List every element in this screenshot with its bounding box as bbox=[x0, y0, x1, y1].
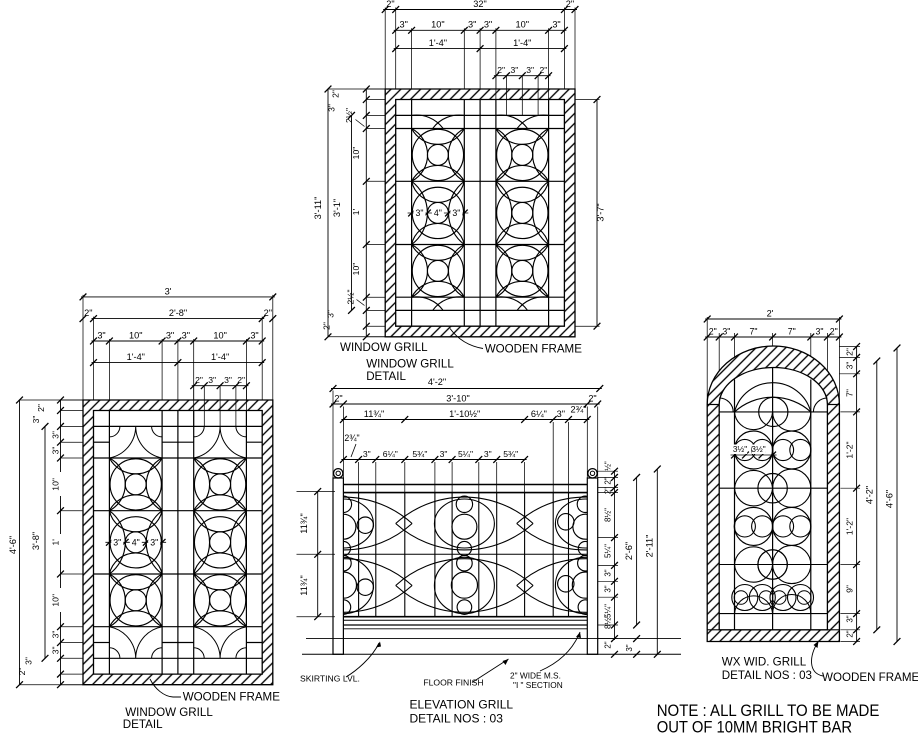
svg-text:4'-6": 4'-6" bbox=[8, 536, 18, 554]
svg-text:2": 2" bbox=[709, 326, 717, 336]
svg-text:3'-10": 3'-10" bbox=[446, 393, 469, 403]
svg-text:1'-2": 1'-2" bbox=[844, 518, 854, 535]
svg-text:WINDOW GRILL: WINDOW GRILL bbox=[366, 357, 454, 370]
svg-text:3": 3" bbox=[51, 631, 61, 639]
svg-text:10": 10" bbox=[516, 20, 529, 30]
svg-text:WOODEN FRAME: WOODEN FRAME bbox=[822, 671, 918, 684]
svg-text:7": 7" bbox=[749, 326, 757, 336]
svg-text:3": 3" bbox=[484, 20, 492, 30]
svg-text:1'-10½": 1'-10½" bbox=[449, 409, 480, 419]
svg-text:WOODEN FRAME: WOODEN FRAME bbox=[183, 691, 281, 704]
svg-text:6¼": 6¼" bbox=[383, 449, 398, 459]
svg-text:2": 2" bbox=[588, 393, 596, 403]
svg-text:"I " SECTION: "I " SECTION bbox=[513, 680, 563, 690]
svg-text:3'-8": 3'-8" bbox=[31, 532, 41, 550]
svg-text:1'-4": 1'-4" bbox=[127, 352, 145, 362]
svg-text:3": 3" bbox=[815, 326, 823, 336]
svg-text:2": 2" bbox=[845, 630, 854, 637]
svg-text:2'-11": 2'-11" bbox=[645, 535, 655, 558]
svg-text:4'-2": 4'-2" bbox=[864, 486, 874, 504]
svg-text:3": 3" bbox=[526, 65, 534, 75]
svg-text:WINDOW GRILL: WINDOW GRILL bbox=[125, 706, 213, 719]
svg-text:3": 3" bbox=[415, 208, 423, 218]
svg-text:11¾": 11¾" bbox=[299, 513, 309, 533]
svg-text:4": 4" bbox=[132, 537, 140, 547]
svg-text:DETAIL NOS : 03: DETAIL NOS : 03 bbox=[722, 669, 812, 682]
svg-text:2": 2" bbox=[604, 487, 613, 494]
svg-text:10": 10" bbox=[431, 20, 444, 30]
svg-text:SKIRTING LVL.: SKIRTING LVL. bbox=[300, 674, 360, 684]
svg-text:2½": 2½" bbox=[344, 108, 354, 123]
svg-text:7": 7" bbox=[844, 389, 854, 397]
svg-text:3": 3" bbox=[468, 20, 476, 30]
svg-text:2": 2" bbox=[830, 326, 838, 336]
svg-text:8½": 8½" bbox=[604, 508, 613, 522]
svg-text:5¼": 5¼" bbox=[604, 544, 613, 558]
svg-text:2": 2" bbox=[237, 375, 245, 385]
svg-text:10": 10" bbox=[129, 330, 142, 340]
svg-text:5¼": 5¼" bbox=[458, 449, 473, 459]
svg-text:9": 9" bbox=[844, 585, 854, 593]
svg-text:2": 2" bbox=[17, 668, 27, 676]
svg-text:3": 3" bbox=[150, 537, 158, 547]
svg-text:2': 2' bbox=[767, 308, 774, 318]
svg-text:10": 10" bbox=[51, 594, 61, 607]
svg-text:2": 2" bbox=[331, 90, 341, 98]
svg-text:2": 2" bbox=[36, 404, 46, 412]
svg-text:WOODEN FRAME: WOODEN FRAME bbox=[485, 343, 583, 356]
svg-text:2": 2" bbox=[604, 641, 613, 648]
svg-text:3": 3" bbox=[845, 615, 854, 622]
svg-text:3": 3" bbox=[208, 375, 216, 385]
svg-text:32": 32" bbox=[473, 0, 486, 9]
svg-text:10": 10" bbox=[351, 263, 361, 276]
svg-text:WX WID. GRILL: WX WID. GRILL bbox=[722, 656, 807, 669]
svg-text:3'-11": 3'-11" bbox=[313, 197, 323, 220]
svg-text:WINDOW GRILL: WINDOW GRILL bbox=[340, 341, 428, 354]
svg-text:3": 3" bbox=[510, 65, 518, 75]
svg-text:4'-2": 4'-2" bbox=[428, 377, 446, 387]
svg-text:3": 3" bbox=[722, 326, 730, 336]
svg-text:2": 2" bbox=[386, 0, 394, 9]
svg-text:1'-2": 1'-2" bbox=[844, 441, 854, 458]
svg-text:4'-6": 4'-6" bbox=[885, 490, 895, 508]
svg-text:2": 2" bbox=[264, 308, 272, 318]
svg-text:6¼": 6¼" bbox=[531, 409, 547, 419]
svg-text:1'-4": 1'-4" bbox=[429, 38, 447, 48]
svg-text:2": 2" bbox=[84, 308, 92, 318]
svg-text:1'-4": 1'-4" bbox=[513, 38, 531, 48]
svg-text:3": 3" bbox=[31, 416, 41, 424]
svg-text:3": 3" bbox=[844, 362, 854, 370]
svg-text:8½": 8½" bbox=[604, 615, 613, 629]
svg-text:2": 2" bbox=[539, 65, 547, 75]
svg-text:2¾": 2¾" bbox=[570, 405, 586, 415]
svg-text:3": 3" bbox=[182, 330, 190, 340]
svg-text:5¾": 5¾" bbox=[503, 449, 518, 459]
svg-text:3": 3" bbox=[363, 449, 371, 459]
svg-text:2": 2" bbox=[604, 477, 613, 484]
svg-text:3": 3" bbox=[604, 585, 613, 592]
svg-text:DETAIL: DETAIL bbox=[366, 370, 406, 383]
svg-text:FLOOR FINISH: FLOOR FINISH bbox=[423, 678, 483, 688]
svg-text:2": 2" bbox=[844, 348, 854, 356]
svg-text:DETAIL NOS : 03: DETAIL NOS : 03 bbox=[410, 712, 504, 726]
svg-text:3½": 3½" bbox=[733, 445, 747, 454]
svg-text:2" WIDE M.S.: 2" WIDE M.S. bbox=[510, 671, 561, 681]
svg-text:3': 3' bbox=[165, 286, 172, 296]
svg-text:3": 3" bbox=[327, 104, 337, 112]
svg-text:3": 3" bbox=[552, 20, 560, 30]
svg-text:3": 3" bbox=[484, 449, 492, 459]
svg-text:3": 3" bbox=[224, 375, 232, 385]
svg-text:2": 2" bbox=[566, 0, 574, 9]
svg-text:10": 10" bbox=[213, 330, 226, 340]
svg-text:2'-6": 2'-6" bbox=[624, 542, 634, 560]
svg-text:3'-1": 3'-1" bbox=[332, 199, 342, 217]
svg-text:3½": 3½" bbox=[751, 445, 765, 454]
svg-text:10": 10" bbox=[351, 147, 361, 160]
svg-text:2": 2" bbox=[195, 375, 203, 385]
svg-text:3": 3" bbox=[326, 310, 336, 318]
svg-text:1': 1' bbox=[351, 208, 361, 215]
svg-text:2": 2" bbox=[334, 393, 342, 403]
svg-text:3": 3" bbox=[51, 646, 61, 654]
svg-text:NOTE : ALL GRILL TO BE MADE: NOTE : ALL GRILL TO BE MADE bbox=[657, 702, 880, 720]
svg-text:2¾": 2¾" bbox=[344, 433, 359, 443]
svg-text:3": 3" bbox=[440, 449, 448, 459]
svg-text:OUT OF 10MM BRIGHT BAR: OUT OF 10MM BRIGHT BAR bbox=[657, 718, 852, 736]
svg-text:3": 3" bbox=[24, 657, 34, 665]
svg-text:3": 3" bbox=[604, 569, 613, 576]
svg-text:4": 4" bbox=[434, 208, 442, 218]
svg-text:11¾": 11¾" bbox=[364, 409, 384, 419]
svg-text:11¾": 11¾" bbox=[299, 575, 309, 595]
svg-text:1'-4": 1'-4" bbox=[211, 352, 229, 362]
svg-text:3": 3" bbox=[166, 330, 174, 340]
svg-text:3": 3" bbox=[51, 431, 61, 439]
svg-text:3": 3" bbox=[557, 409, 565, 419]
svg-text:2": 2" bbox=[322, 322, 332, 330]
svg-text:3'-7": 3'-7" bbox=[596, 203, 606, 221]
svg-text:½": ½" bbox=[604, 461, 613, 471]
svg-text:2": 2" bbox=[497, 65, 505, 75]
svg-text:7": 7" bbox=[788, 326, 796, 336]
svg-text:3": 3" bbox=[51, 447, 61, 455]
svg-text:1': 1' bbox=[51, 539, 61, 546]
svg-text:3": 3" bbox=[250, 330, 258, 340]
svg-text:10": 10" bbox=[51, 478, 61, 491]
svg-text:ELEVATION GRILL: ELEVATION GRILL bbox=[410, 698, 514, 712]
svg-text:5¾": 5¾" bbox=[412, 449, 427, 459]
svg-text:3": 3" bbox=[452, 208, 460, 218]
svg-text:2'-8": 2'-8" bbox=[169, 308, 187, 318]
svg-text:DETAIL: DETAIL bbox=[123, 718, 163, 731]
svg-text:3": 3" bbox=[113, 537, 121, 547]
svg-text:3": 3" bbox=[625, 644, 634, 651]
svg-text:3": 3" bbox=[400, 20, 408, 30]
svg-text:2½": 2½" bbox=[346, 290, 356, 305]
svg-text:3": 3" bbox=[97, 330, 105, 340]
